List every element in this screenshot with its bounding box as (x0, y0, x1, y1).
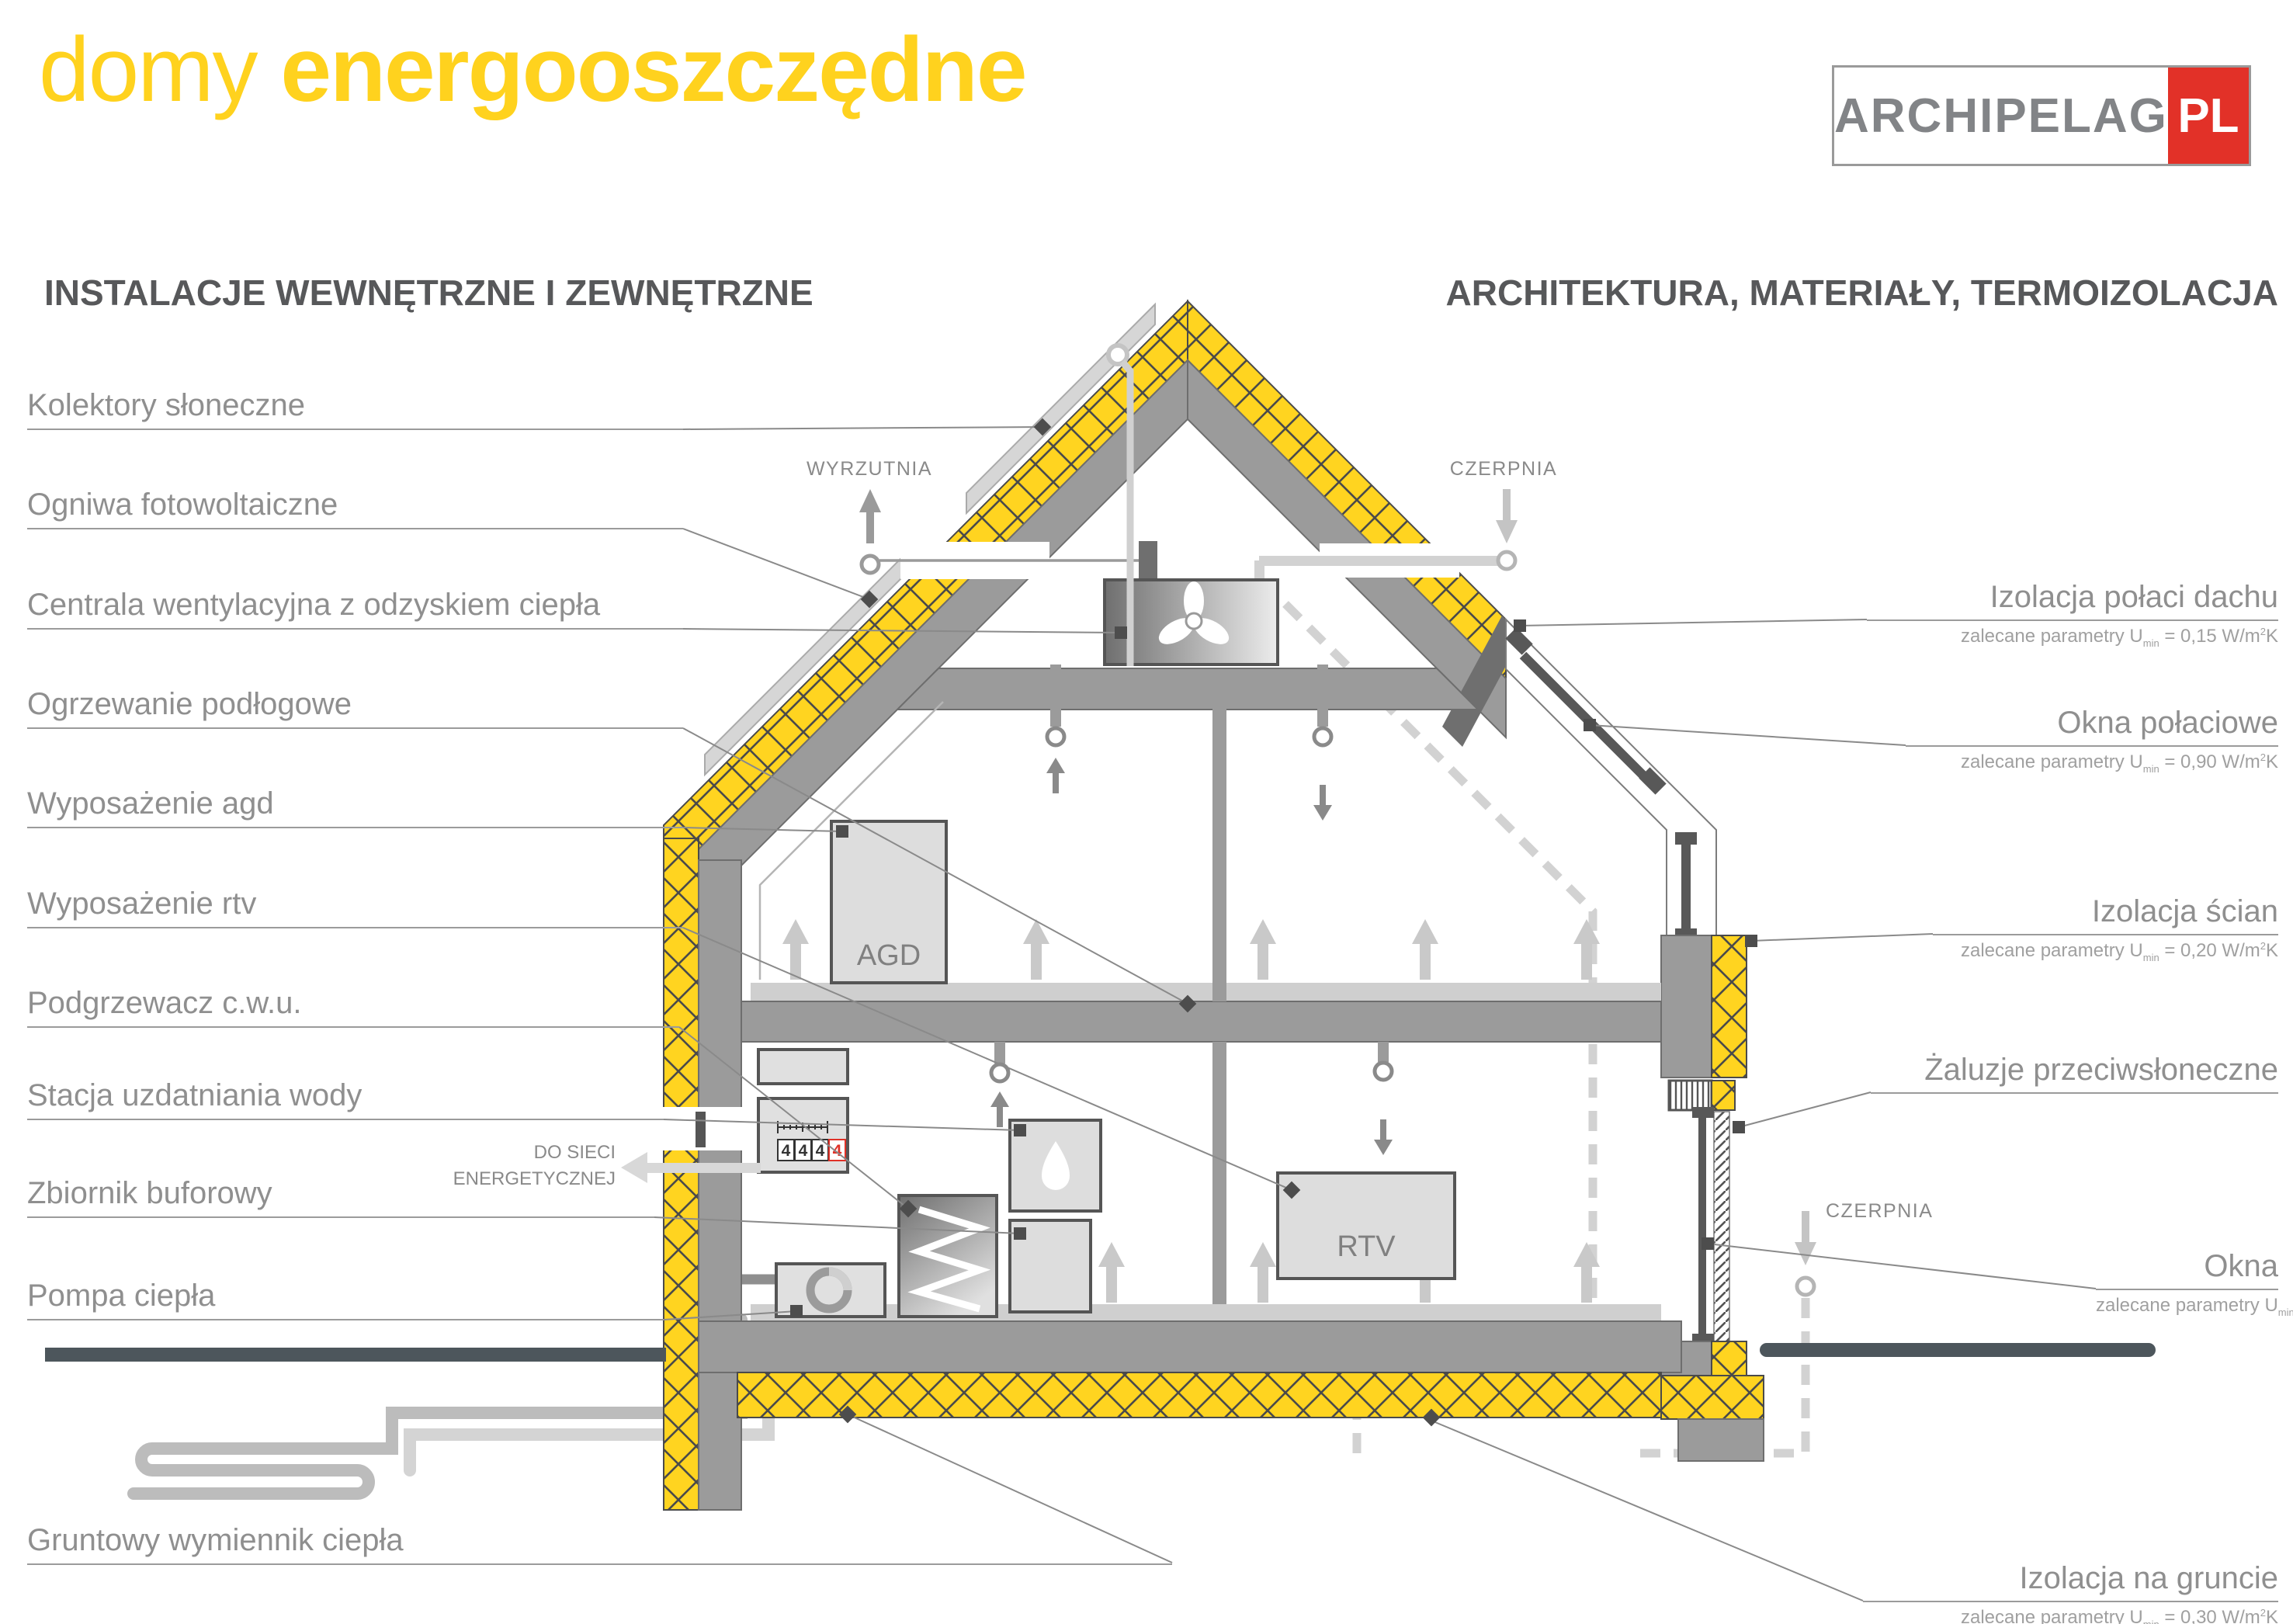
windows-note: zalecane parametry Umin = 0,90 W/m2K (2096, 1295, 2278, 1318)
agd-label: AGD (857, 939, 921, 972)
left-wall-window-frame (696, 1112, 706, 1147)
svg-text:4: 4 (833, 1142, 842, 1160)
intake-pipe (1259, 556, 1507, 566)
label-roof-insulation[interactable]: Izolacja połaci dachu zalecane parametry… (1867, 581, 2278, 649)
label-agd[interactable]: Wyposażenie agd (27, 787, 683, 828)
label-dhw-heater[interactable]: Podgrzewacz c.w.u. (27, 987, 679, 1028)
floor-heating-layer-ground (751, 1304, 1661, 1321)
wall-insulation-note: zalecane parametry Umin = 0,20 W/m2K (1933, 940, 2278, 963)
exhaust-duct-stub (1139, 541, 1157, 581)
agd-appliance: AGD (831, 821, 946, 983)
czerpnia-roof-intake: CZERPNIA (1450, 458, 1557, 569)
svg-text:4: 4 (782, 1142, 791, 1160)
left-wall (660, 838, 747, 1510)
ground-slab (699, 1321, 1681, 1372)
ventilation-ducts (990, 665, 1393, 1155)
label-solar-collectors[interactable]: Kolektory słoneczne (27, 389, 683, 430)
czerpnia-roof-label: CZERPNIA (1450, 458, 1557, 480)
czerpnia-wall-label: CZERPNIA (1826, 1200, 1933, 1222)
interior-wall-ground (1212, 1042, 1226, 1304)
label-rtv[interactable]: Wyposażenie rtv (27, 887, 683, 928)
label-ventilation-unit[interactable]: Centrala wentylacyjna z odzyskiem ciepła (27, 588, 683, 630)
label-ground-insulation[interactable]: Izolacja na gruncie zalecane parametry U… (1863, 1562, 2278, 1624)
left-wall-structure (699, 860, 741, 1510)
label-floor-heating[interactable]: Ogrzewanie podłogowe (27, 688, 683, 729)
label-wall-insulation[interactable]: Izolacja ścian zalecane parametry Umin =… (1933, 895, 2278, 963)
exhaust-outlet-icon (862, 556, 879, 573)
svg-text:4: 4 (816, 1142, 825, 1160)
label-sun-blinds[interactable]: Żaluzje przeciwsłoneczne (1871, 1053, 2278, 1094)
roof-window-band (1505, 619, 1716, 941)
label-water-treatment[interactable]: Stacja uzdatniania wody (27, 1079, 664, 1120)
label-buffer-tank[interactable]: Zbiornik buforowy (27, 1177, 654, 1218)
label-ground-exchanger[interactable]: Gruntowy wymiennik ciepła (27, 1524, 1172, 1565)
title-bold: energooszczędne (280, 19, 1025, 121)
right-wall (1661, 935, 1747, 1376)
energy-meter: 4 4 4 4 (758, 1098, 848, 1172)
sun-blind (1714, 1112, 1729, 1341)
rtv-appliance: RTV (1278, 1173, 1455, 1279)
label-heat-pump[interactable]: Pompa ciepła (27, 1279, 664, 1320)
small-appliance-box (758, 1050, 848, 1084)
ground-insulation-note: zalecane parametry Umin = 0,30 W/m2K (1863, 1607, 2278, 1624)
archipelag-logo[interactable]: ARCHIPELAG PL (1832, 65, 2251, 166)
logo-tld-badge: PL (2168, 68, 2249, 164)
title-light: domy (39, 19, 257, 121)
dhw-tank (899, 1195, 997, 1317)
blind-roller-box (1669, 1081, 1712, 1110)
page-title: domy energooszczędne (39, 17, 1026, 123)
infographic-energy-efficient-house: WYRZUTNIA CZERPNIA CZERPNIA (0, 0, 2293, 1624)
section-heading-architecture: ARCHITEKTURA, MATERIAŁY, TERMOIZOLACJA (1446, 272, 2278, 314)
wall-insulation (1712, 935, 1747, 1077)
logo-name: ARCHIPELAG (1834, 68, 2168, 164)
roof-window-glazing (1523, 655, 1647, 779)
mid-floor-slab (741, 1001, 1661, 1042)
rtv-label: RTV (1337, 1230, 1396, 1263)
floor-heating-layer-upper (751, 983, 1661, 1001)
czerpnia-wall-intake: CZERPNIA (1795, 1200, 1933, 1295)
roof-windows-note: zalecane parametry Umin = 0,90 W/m2K (1906, 751, 2278, 775)
intake-outlet-icon (1498, 552, 1515, 569)
ground-insulation (737, 1372, 1661, 1418)
attic-ceiling-slab (897, 668, 1478, 710)
svg-text:4: 4 (799, 1142, 808, 1160)
label-roof-windows[interactable]: Okna połaciowe zalecane parametry Umin =… (1906, 706, 2278, 775)
grid-label-line1: DO SIECI (534, 1142, 616, 1163)
section-heading-installations: INSTALACJE WEWNĘTRZNE I ZEWNĘTRZNE (44, 272, 813, 314)
wyrzutnia-label: WYRZUTNIA (807, 458, 932, 480)
interior-wall-upper (1212, 679, 1226, 1001)
label-pv-cells[interactable]: Ogniwa fotowoltaiczne (27, 488, 683, 529)
left-wall-insulation (664, 838, 699, 1510)
knee-wall-structure (1661, 935, 1712, 1077)
roof-insulation-note: zalecane parametry Umin = 0,15 W/m2K (1867, 626, 2278, 649)
label-windows[interactable]: Okna zalecane parametry Umin = 0,90 W/m2… (2096, 1250, 2278, 1318)
